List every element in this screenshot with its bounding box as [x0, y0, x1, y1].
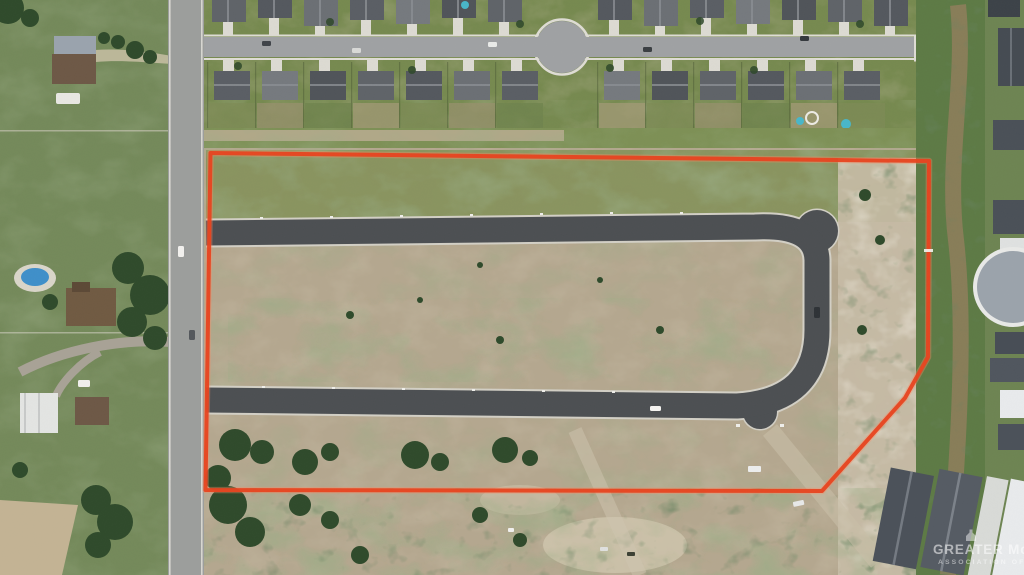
- aerial-photo: GREATER McALLEN ASSOCIATION OF REALTORS: [0, 0, 1024, 575]
- photo-grain: [0, 0, 1024, 575]
- watermark-line1: GREATER McALLEN: [933, 542, 1024, 557]
- aerial-photo-canvas: GREATER McALLEN ASSOCIATION OF REALTORS: [0, 0, 1024, 575]
- watermark-line2: ASSOCIATION OF REALTORS: [938, 559, 1024, 566]
